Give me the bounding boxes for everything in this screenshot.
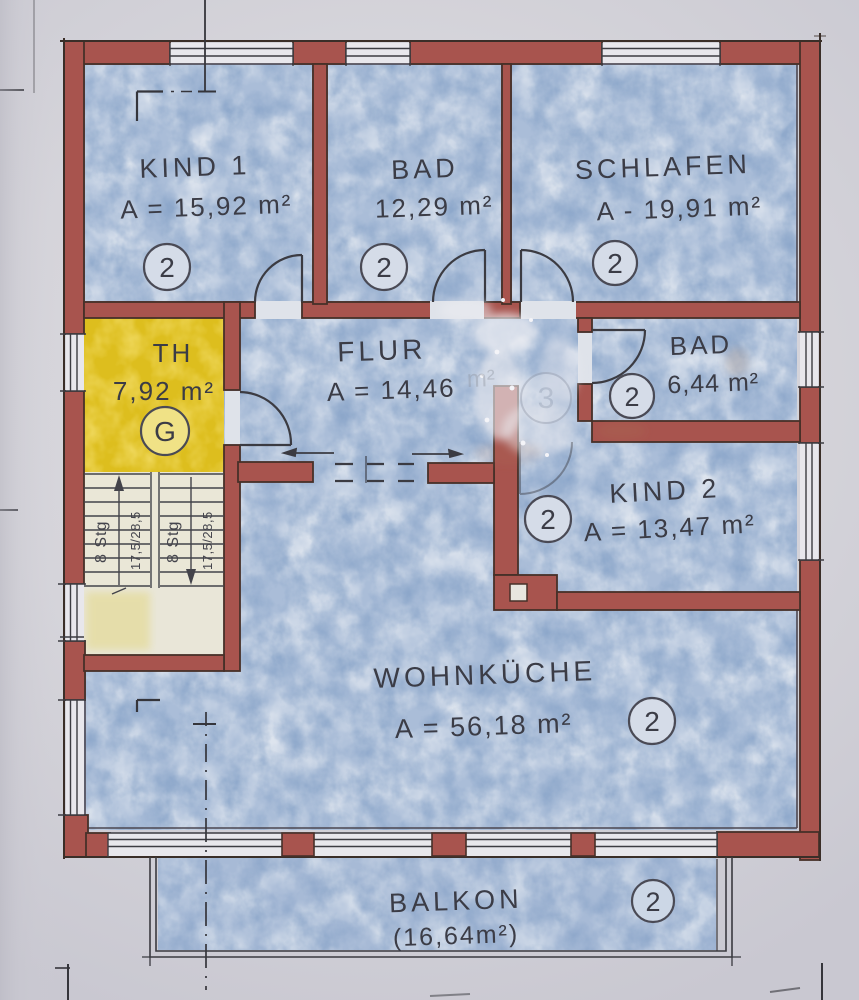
svg-text:2: 2	[645, 887, 660, 917]
svg-text:12,29 m²: 12,29 m²	[374, 190, 494, 224]
svg-text:BAD: BAD	[669, 329, 732, 361]
svg-text:2: 2	[607, 248, 623, 279]
svg-text:SCHLAFEN: SCHLAFEN	[574, 149, 751, 185]
svg-text:KIND 2: KIND 2	[609, 473, 721, 509]
svg-text:2: 2	[376, 252, 392, 283]
svg-text:8 Stg: 8 Stg	[165, 521, 182, 563]
svg-text:m²: m²	[466, 365, 495, 393]
svg-text:2: 2	[540, 504, 556, 535]
svg-text:A = 15,92 m²: A = 15,92 m²	[120, 189, 293, 225]
svg-text:A = 14,46: A = 14,46	[326, 372, 456, 406]
svg-text:6,44 m²: 6,44 m²	[667, 368, 760, 399]
svg-text:TH: TH	[153, 338, 194, 368]
svg-text:G: G	[154, 416, 176, 447]
svg-text:A - 19,91 m²: A - 19,91 m²	[596, 191, 763, 227]
svg-text:8 Stg: 8 Stg	[93, 521, 110, 563]
svg-text:A = 56,18 m²: A = 56,18 m²	[394, 708, 573, 744]
svg-text:(16,64m²): (16,64m²)	[392, 920, 519, 952]
svg-text:BALKON: BALKON	[389, 884, 524, 919]
svg-text:7,92 m²: 7,92 m²	[113, 376, 215, 406]
svg-text:2: 2	[159, 252, 175, 283]
svg-text:2: 2	[644, 706, 660, 737]
svg-text:BAD: BAD	[391, 153, 460, 185]
svg-text:17,5/28,5: 17,5/28,5	[200, 511, 215, 570]
svg-text:3: 3	[538, 382, 555, 415]
svg-text:KIND 1: KIND 1	[139, 150, 251, 184]
svg-text:17,5/28,5: 17,5/28,5	[128, 511, 143, 570]
svg-text:FLUR: FLUR	[337, 333, 427, 367]
svg-text:2: 2	[624, 382, 639, 412]
